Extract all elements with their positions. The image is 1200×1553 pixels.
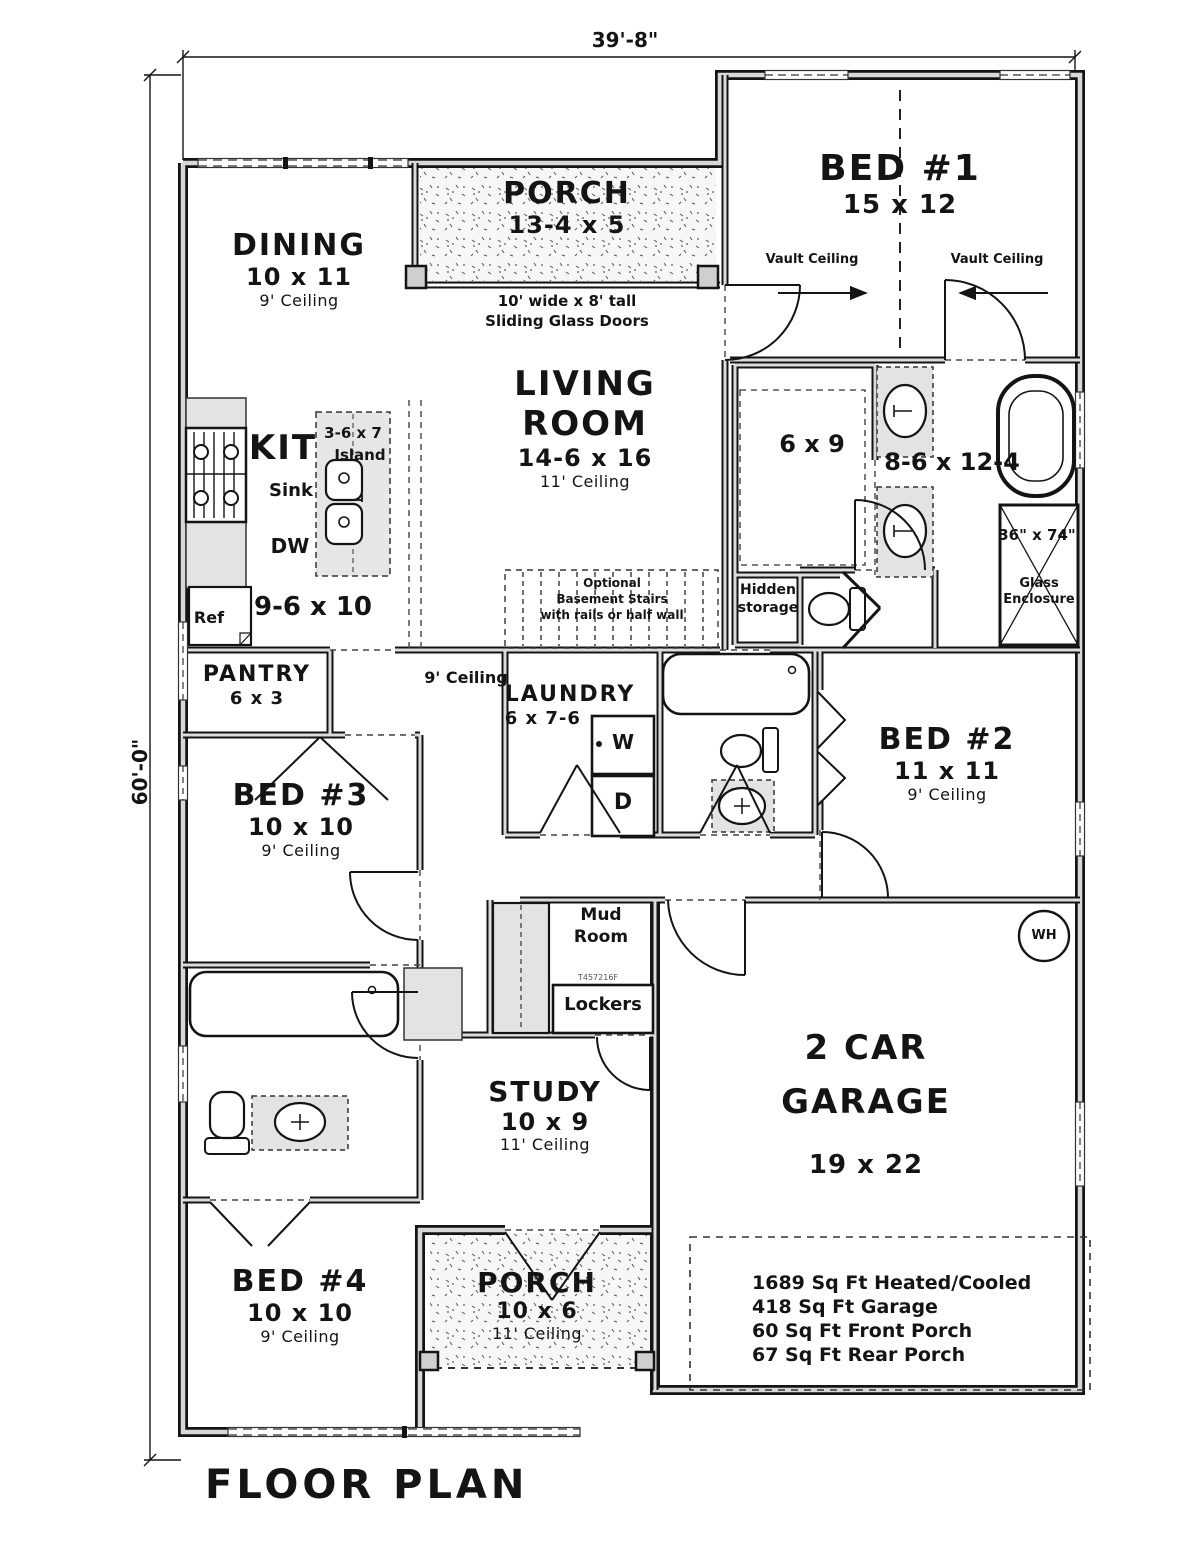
shower-label-line2: Enclosure bbox=[1003, 592, 1074, 607]
vault-ceiling-label-right: Vault Ceiling bbox=[951, 252, 1044, 267]
area-summary-line: 418 Sq Ft Garage bbox=[752, 1296, 938, 1318]
toilet-icon bbox=[205, 1138, 249, 1154]
area-summary-line: 67 Sq Ft Rear Porch bbox=[752, 1344, 965, 1366]
porch-floor-textures bbox=[420, 168, 716, 1366]
tub-icon bbox=[663, 654, 809, 714]
area-summary-line: 1689 Sq Ft Heated/Cooled bbox=[752, 1272, 1031, 1294]
room-label-porch-front: PORCH 13-4 x 5 bbox=[503, 176, 631, 240]
room-label-bed3: BED #3 10 x 10 9' Ceiling bbox=[233, 778, 370, 861]
dishwasher-label: DW bbox=[271, 534, 310, 558]
room-label-garage: 2 CAR GARAGE 19 x 22 bbox=[781, 1028, 951, 1181]
shower-label-line1: Glass bbox=[1019, 576, 1058, 591]
island-label: Island bbox=[334, 446, 385, 464]
stairs-note-line3: with rails or half wall bbox=[540, 608, 683, 622]
refrigerator-label: Ref bbox=[194, 608, 224, 627]
room-label-bed4: BED #4 10 x 10 9' Ceiling bbox=[232, 1264, 369, 1347]
range-icon bbox=[186, 428, 246, 522]
room-label-living: LIVING ROOM 14-6 x 16 11' Ceiling bbox=[514, 364, 656, 491]
stairs-note-line2: Basement Stairs bbox=[556, 592, 667, 606]
room-label-kitchen: KIT bbox=[249, 428, 317, 468]
master-bath-size: 8-6 x 12-4 bbox=[884, 448, 1020, 476]
vault-ceiling-label-left: Vault Ceiling bbox=[766, 252, 859, 267]
master-closet-size: 6 x 9 bbox=[779, 430, 845, 458]
mud-room-label-line2: Room bbox=[574, 927, 628, 947]
kitchen-size: 9-6 x 10 bbox=[254, 592, 372, 622]
toilet-icon bbox=[850, 588, 865, 630]
floor-plan-page: 39'-8" 60'-0" PORCH 13-4 x 5 BED #1 15 x… bbox=[0, 0, 1200, 1553]
washer-label: W bbox=[612, 730, 634, 754]
page-title: FLOOR PLAN bbox=[205, 1462, 528, 1508]
lockers-label: Lockers bbox=[564, 994, 642, 1015]
water-heater-label: WH bbox=[1031, 928, 1056, 943]
height-dimension: 60'-0" bbox=[128, 739, 152, 806]
linen bbox=[404, 968, 462, 1040]
hidden-storage-line1: Hidden bbox=[740, 582, 796, 598]
sink-icon bbox=[326, 460, 362, 500]
sliding-doors-note-line2: Sliding Glass Doors bbox=[485, 312, 649, 330]
room-label-porch-rear: PORCH 10 x 6 11' Ceiling bbox=[477, 1266, 597, 1344]
toilet-icon bbox=[721, 735, 761, 767]
sink-label: Sink bbox=[269, 480, 313, 501]
room-label-bed2: BED #2 11 x 11 9' Ceiling bbox=[879, 722, 1016, 805]
area-summary-line: 60 Sq Ft Front Porch bbox=[752, 1320, 972, 1342]
room-label-laundry: LAUNDRY 6 x 7-6 bbox=[505, 682, 636, 729]
room-label-study: STUDY 10 x 9 11' Ceiling bbox=[488, 1075, 601, 1155]
shower-size: 36" x 74" bbox=[998, 526, 1076, 544]
hidden-storage-line2: storage bbox=[738, 600, 799, 616]
bathtub-icon bbox=[190, 972, 398, 1036]
stairs-note-line1: Optional bbox=[583, 576, 641, 590]
room-label-pantry: PANTRY 6 x 3 bbox=[203, 662, 311, 709]
width-dimension: 39'-8" bbox=[592, 28, 659, 52]
dryer-label: D bbox=[614, 790, 632, 815]
sliding-doors-note-line1: 10' wide x 8' tall bbox=[498, 292, 637, 310]
room-label-dining: DINING 10 x 11 9' Ceiling bbox=[232, 228, 366, 311]
room-label-bed1: BED #1 15 x 12 bbox=[819, 148, 981, 221]
mud-room-label-line1: Mud bbox=[580, 905, 621, 925]
island-size: 3-6 x 7 bbox=[324, 424, 382, 442]
plan-code: T457216F bbox=[578, 973, 618, 982]
hall-ceiling-note: 9' Ceiling bbox=[424, 668, 508, 687]
